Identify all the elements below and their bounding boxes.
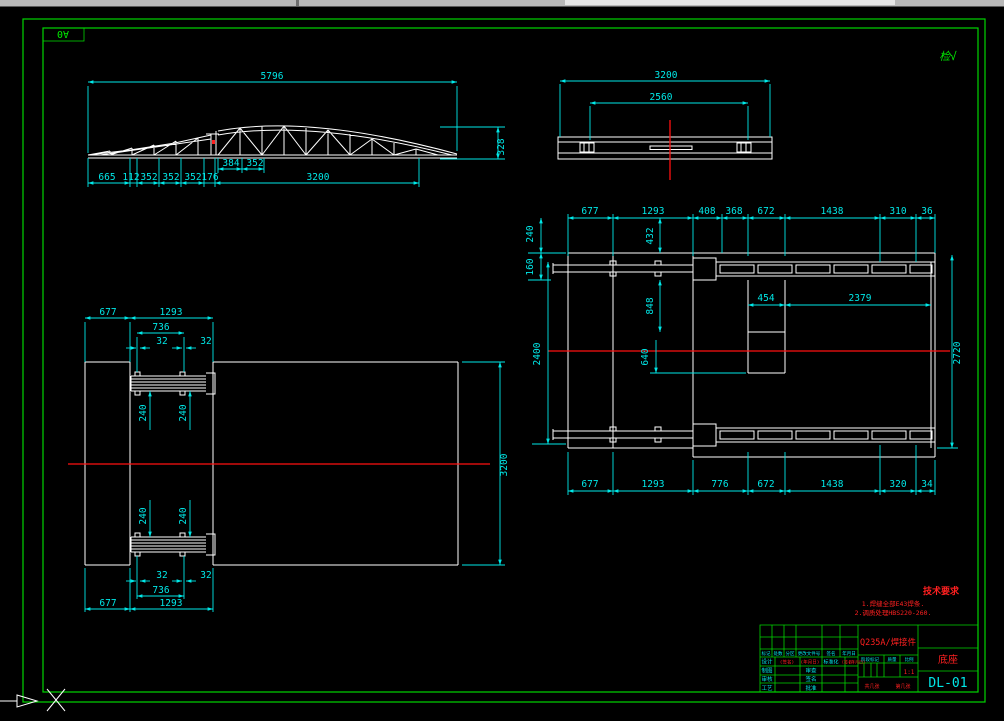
sheet-size-label: A0 [57, 28, 69, 39]
dim-label: 34 [921, 479, 933, 490]
tech-requirements: 技术要求 1.焊缝全部E43焊条. 2.调质处理HBS220-260. [855, 585, 960, 617]
dim-label: 310 [889, 206, 906, 217]
dim-label: 454 [757, 293, 774, 304]
plan-right-extension-lines [528, 214, 958, 495]
dim-label: 1438 [821, 479, 844, 490]
plate-dimensions: 3200 2560 [560, 70, 770, 140]
sign-placeholder: (年月日) [801, 659, 820, 666]
view-plan-right: 677 1293 408 368 672 1438 310 36 677 129… [525, 206, 963, 495]
dim-label: 352 [246, 158, 263, 169]
dim-label: 665 [98, 172, 115, 183]
dim-label: 32 [200, 570, 211, 581]
view-plate-side: 3200 2560 [558, 70, 772, 180]
sign-row-label: 审核 [761, 675, 773, 683]
dim-label: 3200 [499, 453, 510, 476]
dim-label: 1293 [642, 206, 665, 217]
dim-label: 32 [200, 336, 211, 347]
dim-label: 3200 [307, 172, 330, 183]
plan-left-dimensions: 677 1293 736 32 32 240 240 240 240 3200 … [85, 307, 510, 612]
dim-label: 2560 [650, 92, 673, 103]
dim-label: 1293 [642, 479, 665, 490]
dim-label: 3200 [655, 70, 678, 81]
change-header-cell: 标记 [762, 650, 771, 657]
stage-header: 阶段标记 [861, 656, 879, 663]
truss-geometry [88, 126, 457, 158]
dim-label: 2720 [952, 341, 963, 364]
dim-label: 240 [178, 507, 189, 524]
drawing-canvas[interactable]: A0 检√ 5796 328 384 [0, 0, 1004, 721]
change-header-cell: 分区 [786, 650, 795, 657]
plate-geometry [558, 137, 772, 159]
dim-label: 352 [140, 172, 157, 183]
dim-label: 32 [156, 570, 167, 581]
sheet-total: 共几张 [864, 683, 879, 690]
dim-label: 352 [162, 172, 179, 183]
dim-label: 240 [138, 404, 149, 421]
dim-label: 240 [525, 225, 536, 242]
approval-mark: 检√ [939, 50, 957, 63]
sheet-index: 第几张 [895, 683, 910, 690]
dim-label: 36 [921, 206, 933, 217]
drawing-number: DL-01 [928, 676, 967, 691]
dim-label: 368 [725, 206, 742, 217]
title-block: 标记 处数 分区 更改文件号 签名 年月日 设计 (签名) (年月日) 标准化 … [760, 625, 978, 692]
view-plan-left: 677 1293 736 32 32 240 240 240 240 3200 … [68, 307, 510, 612]
sign-row-label: 制图 [761, 667, 773, 675]
tech-req-line: 2.调质处理HBS220-260. [855, 608, 932, 617]
view-truss-elevation: 5796 328 384 352 665 112 352 352 352 176… [88, 71, 507, 187]
dim-label: 408 [698, 206, 715, 217]
dim-label: 677 [581, 206, 598, 217]
inner-border [43, 28, 978, 692]
sign-placeholder: (签名) [780, 659, 794, 666]
tech-req-line: 1.焊缝全部E43焊条. [862, 599, 924, 608]
dim-label: 5796 [261, 71, 284, 82]
dim-label: 432 [645, 227, 656, 244]
plan-right-geometry [553, 253, 935, 457]
dim-label: 2400 [532, 342, 543, 365]
cad-window: A0 检√ 5796 328 384 [0, 0, 1004, 721]
change-header-cell: 处数 [774, 650, 783, 657]
dim-label: 677 [99, 307, 116, 318]
material-spec: Q235A/焊接件 [860, 637, 916, 648]
truss-dimensions: 5796 328 384 352 665 112 352 352 352 176… [88, 71, 507, 187]
scale-value: 1:1 [904, 669, 915, 676]
sign-row-label: 设计 [761, 658, 773, 666]
dim-label: 240 [138, 507, 149, 524]
dim-label: 1438 [821, 206, 844, 217]
tech-req-title: 技术要求 [923, 585, 960, 597]
sign-row-label: 工艺 [761, 685, 773, 692]
dim-label: 848 [645, 297, 656, 314]
change-header-cell: 更改文件号 [798, 650, 821, 657]
dim-label: 32 [156, 336, 167, 347]
dim-label: 1293 [160, 598, 183, 609]
dim-label: 384 [222, 158, 239, 169]
sign-row-label: 批准 [805, 684, 817, 692]
change-header-cell: 签名 [827, 650, 836, 657]
dim-label: 328 [496, 138, 507, 155]
dim-label: 640 [640, 348, 651, 365]
stage-header: 比例 [905, 656, 914, 663]
dim-label: 672 [757, 479, 774, 490]
dim-label: 320 [889, 479, 906, 490]
change-header-cell: 年月日 [842, 650, 856, 657]
sign-row-label: 签名 [805, 675, 816, 683]
dim-label: 736 [152, 322, 169, 333]
dim-label: 176 [201, 172, 218, 183]
dim-label: 112 [122, 172, 139, 183]
dim-label: 776 [711, 479, 728, 490]
dim-label: 352 [184, 172, 201, 183]
dim-label: 736 [152, 585, 169, 596]
dim-label: 240 [178, 404, 189, 421]
stage-header: 质量 [888, 656, 897, 663]
dim-label: 677 [581, 479, 598, 490]
part-name: 底座 [938, 653, 958, 666]
dim-label: 2379 [849, 293, 872, 304]
sign-row-label: 审查 [805, 667, 817, 675]
truss-red-mark [212, 140, 215, 144]
dim-label: 672 [757, 206, 774, 217]
plan-left-extension-lines [85, 322, 505, 612]
sign-row-label: 标准化 [823, 659, 838, 666]
dim-label: 677 [99, 598, 116, 609]
dim-label: 1293 [160, 307, 183, 318]
dim-label: 160 [525, 258, 536, 275]
